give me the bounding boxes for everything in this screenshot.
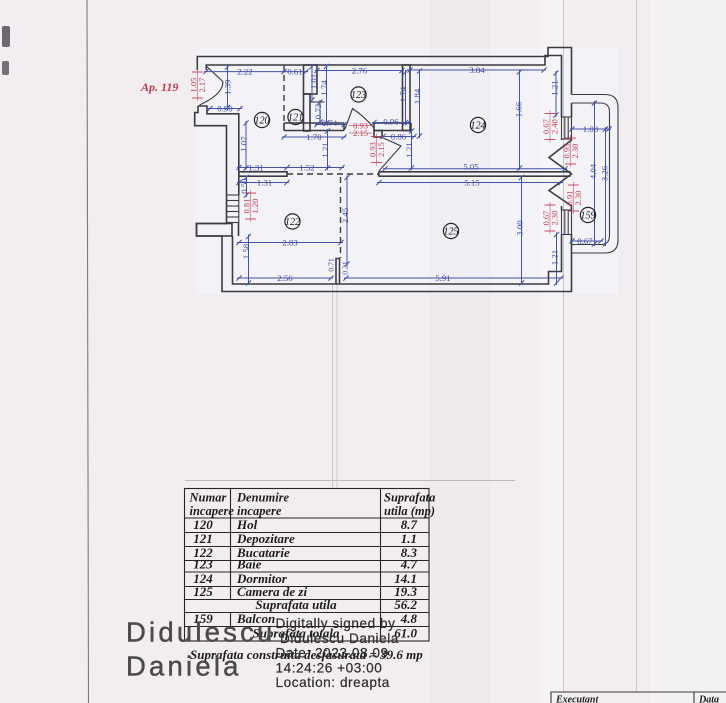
svg-text:1.01: 1.01 (309, 74, 319, 89)
svg-text:2.30: 2.30 (550, 211, 560, 226)
svg-text:1.07: 1.07 (239, 136, 249, 152)
svg-text:Data: Data (698, 695, 719, 703)
svg-text:Executant: Executant (555, 695, 599, 703)
svg-text:2.17: 2.17 (197, 78, 207, 93)
svg-text:1.70: 1.70 (306, 132, 322, 142)
svg-text:3.84: 3.84 (469, 65, 485, 75)
svg-text:5.15: 5.15 (464, 178, 480, 188)
svg-text:Digitally signed by: Digitally signed by (276, 616, 396, 631)
svg-text:Date: 2023.08.09: Date: 2023.08.09 (276, 646, 389, 661)
svg-text:1.31: 1.31 (248, 163, 263, 173)
svg-text:incapere: incapere (190, 504, 235, 518)
svg-text:1.21: 1.21 (320, 142, 330, 157)
svg-text:Numar: Numar (189, 491, 227, 505)
svg-text:2.22: 2.22 (237, 67, 252, 77)
svg-text:1.1: 1.1 (401, 531, 417, 546)
svg-text:5.05: 5.05 (463, 161, 479, 171)
svg-text:159: 159 (580, 210, 595, 221)
svg-text:1.20: 1.20 (250, 199, 260, 214)
svg-text:Didulescu Daniela: Didulescu Daniela (280, 631, 399, 646)
svg-text:2.30: 2.30 (570, 144, 580, 159)
svg-text:2.56: 2.56 (277, 273, 293, 283)
svg-text:1.66: 1.66 (514, 101, 524, 117)
svg-text:56.2: 56.2 (394, 597, 417, 612)
svg-text:0.50: 0.50 (239, 178, 249, 194)
svg-text:0.74: 0.74 (322, 118, 338, 128)
svg-text:0.73: 0.73 (313, 103, 323, 119)
svg-text:2.76: 2.76 (352, 66, 368, 76)
svg-text:125: 125 (193, 584, 213, 599)
svg-text:Depozitare: Depozitare (236, 531, 295, 546)
svg-text:2.83: 2.83 (282, 238, 298, 248)
svg-text:4.8: 4.8 (400, 611, 418, 626)
svg-text:122: 122 (285, 217, 300, 228)
svg-text:Denumire: Denumire (236, 491, 290, 505)
svg-text:Location: dreapta: Location: dreapta (276, 675, 390, 690)
svg-text:5.91: 5.91 (435, 273, 450, 283)
svg-text:1.21: 1.21 (550, 80, 560, 95)
svg-text:Hol: Hol (236, 517, 258, 532)
svg-text:4.7: 4.7 (400, 557, 418, 572)
svg-text:Daniela: Daniela (126, 651, 242, 682)
svg-text:1.74: 1.74 (319, 80, 329, 96)
svg-text:125: 125 (443, 226, 458, 237)
svg-text:Baie: Baie (236, 557, 262, 572)
svg-text:124: 124 (470, 120, 485, 131)
svg-text:123: 123 (193, 557, 213, 572)
svg-text:0.90: 0.90 (217, 104, 233, 114)
svg-text:0.86: 0.86 (391, 132, 407, 142)
svg-text:2.45: 2.45 (340, 207, 350, 223)
svg-text:8.7: 8.7 (401, 517, 418, 532)
svg-text:1.08: 1.08 (583, 124, 599, 134)
svg-text:120: 120 (254, 115, 269, 126)
svg-text:3.26: 3.26 (600, 165, 610, 181)
svg-text:123: 123 (351, 90, 366, 101)
svg-text:incapere: incapere (237, 504, 282, 518)
svg-text:utila (mp): utila (mp) (384, 504, 435, 518)
svg-text:2.30: 2.30 (573, 191, 583, 206)
svg-text:2.40: 2.40 (550, 119, 560, 134)
svg-text:121: 121 (193, 531, 213, 546)
svg-text:Didulescu: Didulescu (126, 617, 276, 648)
svg-text:1.84: 1.84 (412, 88, 422, 104)
svg-text:3.00: 3.00 (515, 220, 525, 236)
svg-text:1.58: 1.58 (241, 243, 251, 259)
svg-text:1.31: 1.31 (257, 178, 272, 188)
svg-text:4.04: 4.04 (588, 163, 598, 179)
svg-text:1.74: 1.74 (398, 86, 408, 102)
svg-text:1.39: 1.39 (223, 79, 233, 95)
svg-text:1.21: 1.21 (550, 250, 560, 265)
svg-text:Ap. 119: Ap. 119 (140, 80, 178, 94)
svg-text:Suprafata utila: Suprafata utila (255, 597, 337, 612)
svg-text:Suprafata: Suprafata (384, 491, 435, 505)
svg-text:0.71: 0.71 (327, 258, 336, 271)
svg-text:0.21: 0.21 (341, 261, 350, 274)
svg-text:120: 120 (193, 517, 213, 532)
svg-text:0.96: 0.96 (383, 117, 399, 127)
svg-text:1.52: 1.52 (299, 163, 314, 173)
svg-text:121: 121 (288, 112, 303, 123)
svg-text:1.21: 1.21 (404, 142, 414, 157)
svg-text:0.61: 0.61 (287, 67, 302, 77)
svg-text:0.67: 0.67 (577, 236, 593, 246)
svg-text:14:24:26 +03:00: 14:24:26 +03:00 (276, 660, 383, 675)
svg-text:2.15: 2.15 (376, 142, 386, 157)
